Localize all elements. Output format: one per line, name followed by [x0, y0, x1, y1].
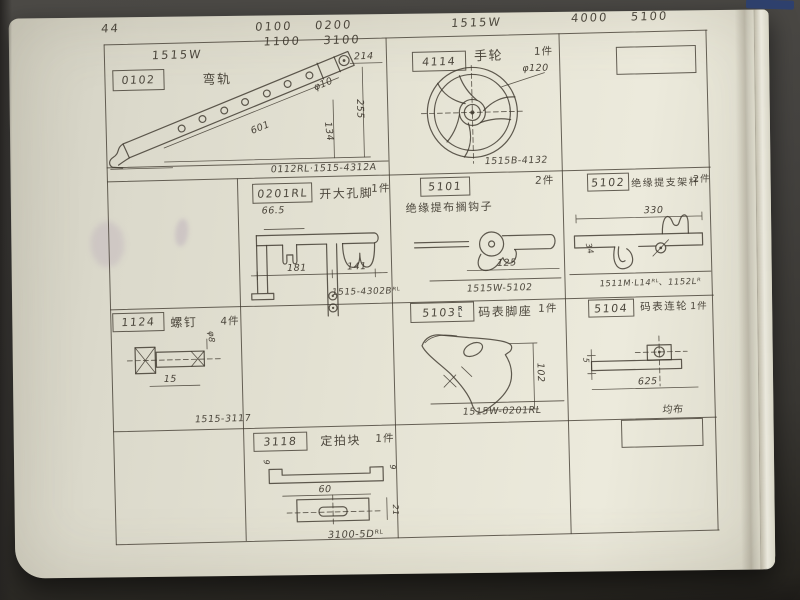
part-box-5104: 5104	[588, 299, 634, 318]
dim-label: 181	[287, 263, 307, 274]
drawing-ref: 1515-3117	[194, 413, 252, 425]
header-codes-right: 4000 5100	[571, 9, 669, 25]
part-name: 码表连轮	[640, 298, 688, 314]
dim-label: 15	[164, 374, 177, 385]
part-qty: 1件	[538, 300, 558, 315]
ink-stain	[174, 218, 190, 247]
drawing-sheet: 44 0100 0200 1100 3100 1515W 1515W 4000 …	[5, 1, 778, 579]
part-drawing-5101-hook: 125	[408, 212, 562, 280]
dim-label: 601	[249, 119, 271, 137]
part-drawing-4114-handwheel: φ120	[396, 60, 560, 168]
dim-label: 255	[354, 99, 365, 119]
dim-label: 9	[262, 459, 271, 465]
dim-label: 9	[388, 464, 397, 470]
part-number: 5103	[421, 305, 456, 319]
part-qty: 2件	[693, 171, 711, 185]
part-number: 5104	[594, 301, 629, 315]
header-codes-top: 0100 0200	[255, 17, 353, 33]
dim-label: 134	[322, 121, 335, 142]
part-drawing-5102-bar: 330 34	[566, 199, 712, 288]
grid-line	[116, 530, 720, 546]
part-number: 3118	[263, 435, 298, 449]
part-drawing-5103-plate: 102	[413, 320, 567, 418]
page-number: 44	[101, 21, 121, 35]
dim-label: 66.5	[262, 205, 285, 217]
part-box-5101: 5101	[420, 177, 470, 197]
dim-label: φ10	[312, 75, 335, 93]
dim-label: 214	[354, 51, 374, 62]
catalog-page: 44 0100 0200 1100 3100 1515W 1515W 4000 …	[9, 9, 776, 578]
part-qty: 2件	[535, 172, 555, 187]
book-edge-mark	[746, 0, 794, 10]
part-qty: 1件	[690, 298, 708, 312]
photo-background: 44 0100 0200 1100 3100 1515W 1515W 4000 …	[0, 0, 800, 600]
part-name: 码表脚座	[478, 302, 532, 320]
drawing-ref: 均布	[662, 400, 685, 416]
part-drawing-5104-bar: 5 625	[571, 329, 713, 400]
dim-label: 141	[347, 261, 367, 272]
part-name: 绝缘提支架杆	[631, 173, 700, 190]
part-drawing-3118-block: 9 9 60 21	[256, 448, 400, 533]
dim-label: 34	[584, 242, 595, 255]
part-number: 1124	[121, 315, 156, 329]
part-qty: 1件	[371, 180, 391, 195]
part-qty: 1件	[375, 430, 395, 445]
part-drawing-1124-screw: φ8 15	[125, 326, 233, 407]
dim-label: φ120	[522, 63, 549, 75]
part-box-5102: 5102	[587, 173, 629, 192]
dim-label: φ8	[206, 331, 216, 343]
part-drawing-0102-rail: 214 601 255 134 φ10	[106, 47, 389, 170]
header-model-right: 1515W	[451, 15, 503, 30]
part-suffix-rl: RL	[458, 306, 463, 318]
part-box-5103RL: 5103 RL	[410, 301, 474, 323]
dim-label: 5	[581, 358, 590, 364]
part-box-0201RL: 0201RL	[252, 182, 312, 203]
empty-label-box	[621, 418, 704, 448]
grid-line	[104, 30, 708, 46]
part-number: 5101	[428, 180, 463, 194]
part-name: 开大孔脚	[319, 184, 373, 202]
part-drawing-0201-bracket: 66.5 181 141	[246, 202, 395, 318]
dim-label: 102	[535, 363, 546, 383]
part-name: 定拍块	[320, 431, 361, 449]
dim-label: 330	[644, 205, 664, 216]
dim-label: 125	[497, 257, 517, 268]
part-number: 0201RL	[256, 186, 308, 200]
drawing-ref: 1515W-5102	[466, 282, 533, 295]
dim-label: 60	[318, 484, 331, 495]
dim-label: 625	[638, 376, 658, 387]
part-qty: 1件	[534, 43, 554, 58]
empty-label-box	[616, 45, 697, 75]
dim-label: 21	[391, 504, 400, 515]
part-number: 5102	[591, 175, 626, 189]
part-box-3118: 3118	[253, 432, 307, 452]
